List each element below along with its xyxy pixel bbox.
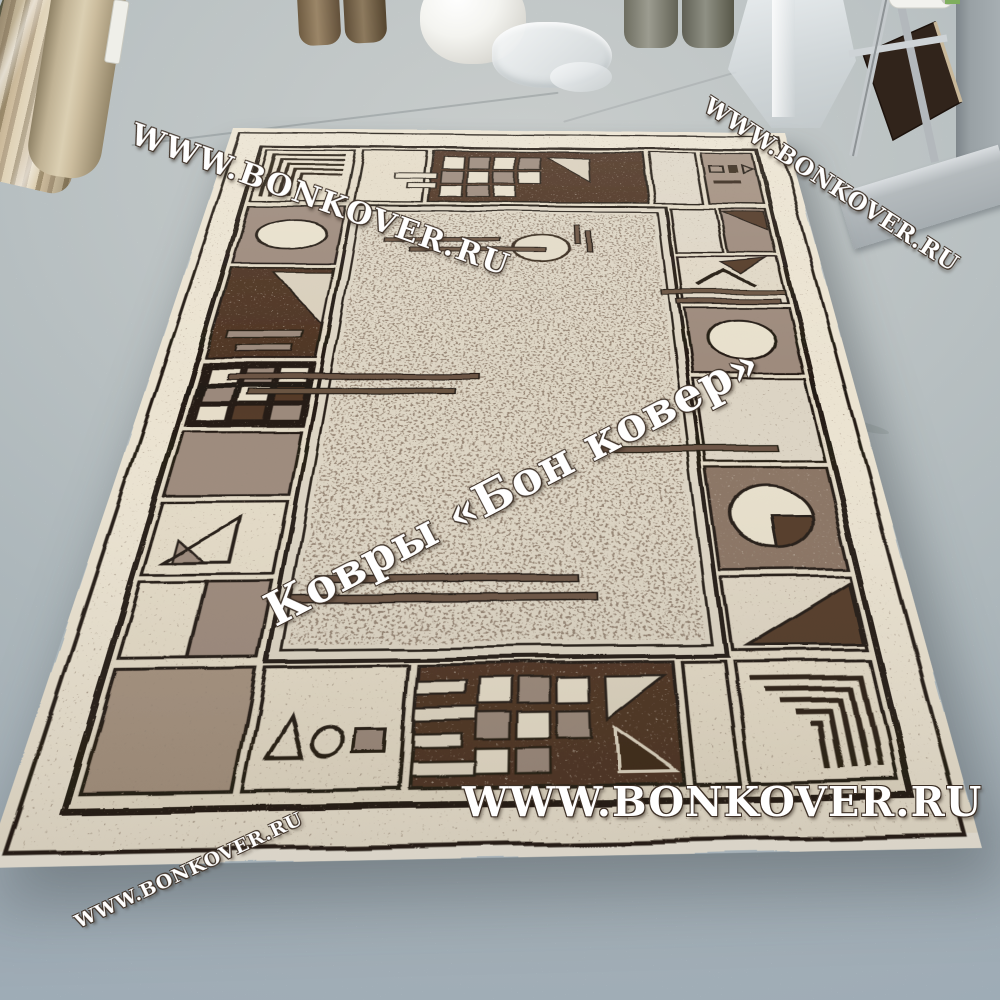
green-tape [945,0,960,4]
metal-rack [835,0,970,174]
carpet-rolls-brown-pair [296,0,391,48]
carpet-roll [624,0,678,48]
carpet-rolls-gray-pair [624,0,740,50]
carpet-roll [342,0,387,44]
warehouse-photo: WWW.BONKOVER.RU WWW.BONKOVER.RU Ковры «Б… [0,0,1000,1000]
watermark-bottom-center: WWW.BONKOVER.RU [462,778,982,826]
carpet-roll [682,0,734,48]
plastic-fold-highlight [772,0,795,117]
plastic-bag [550,62,612,92]
carpet-roll [296,0,341,46]
